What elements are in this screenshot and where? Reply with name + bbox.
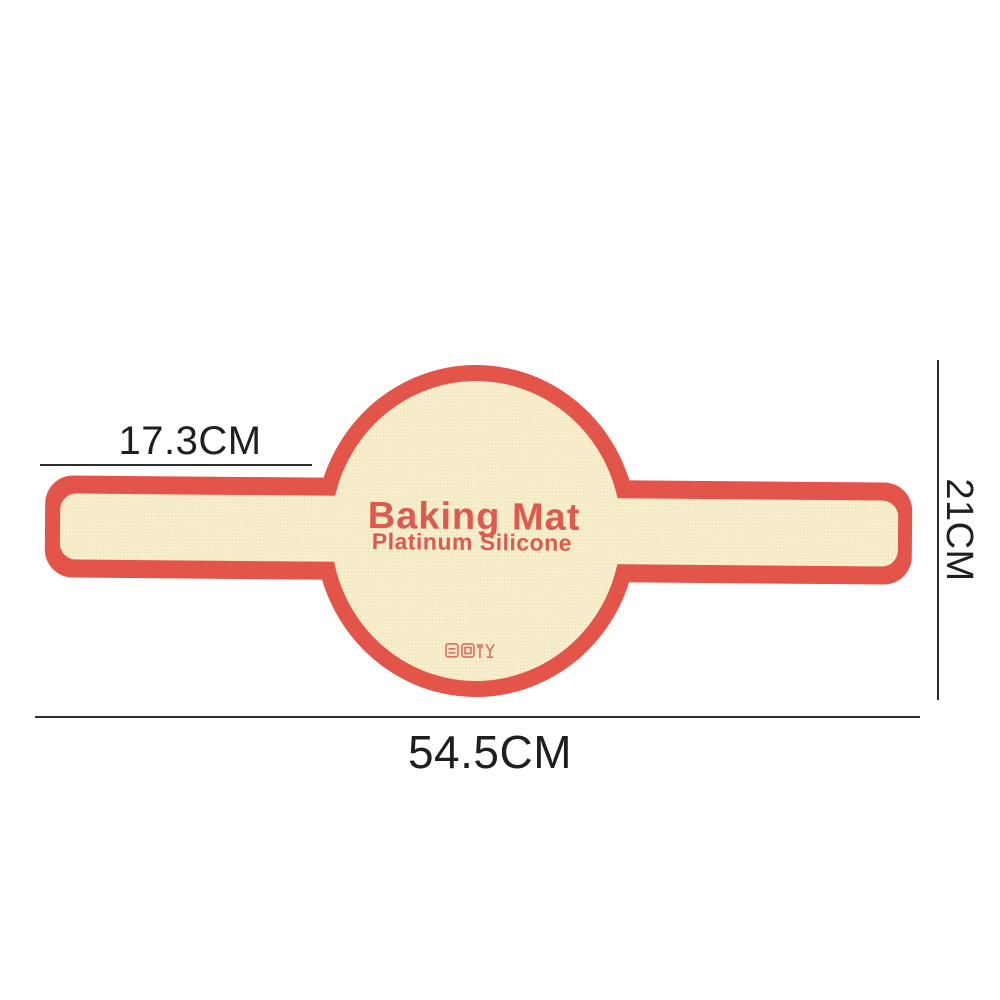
dim-label-total-length: 54.5CM <box>35 729 945 775</box>
dim-label-height: 21CM <box>937 460 981 600</box>
dim-label-left-section-width: 17.3CM <box>40 421 340 461</box>
dim-line-total-length <box>35 716 920 718</box>
product-dimension-image: Baking Mat Platinum Silicone <box>0 0 1000 1000</box>
dim-line-left-section-width <box>40 464 312 466</box>
dim-line-height <box>937 360 939 700</box>
baking-mat-photo: Baking Mat Platinum Silicone <box>0 0 1000 1000</box>
mat-material-text: Platinum Silicone <box>372 528 572 556</box>
mat-shape: Baking Mat Platinum Silicone <box>28 346 941 724</box>
